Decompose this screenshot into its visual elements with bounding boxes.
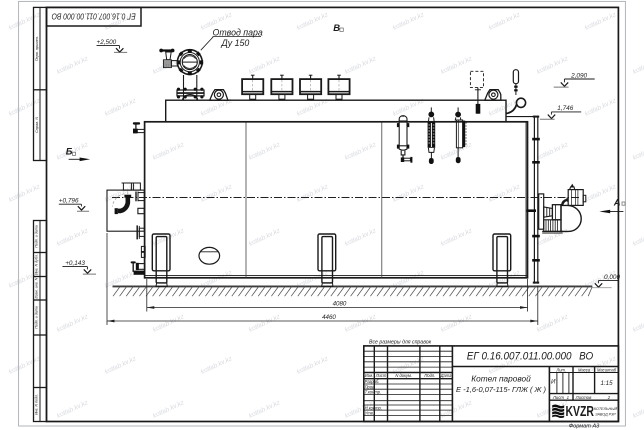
svg-text:Листов: Листов [575, 395, 592, 400]
svg-text:Масса: Масса [578, 367, 591, 372]
svg-text:2,090: 2,090 [570, 73, 587, 80]
svg-text:Взам. инв. N: Взам. инв. N [35, 277, 39, 298]
svg-text:Дата: Дата [440, 373, 453, 378]
svg-text:ЕГ 0.16.007.011.00.000 ВО: ЕГ 0.16.007.011.00.000 ВО [467, 351, 594, 363]
svg-text:Лист: Лист [552, 395, 564, 400]
svg-text:Пров.: Пров. [365, 384, 376, 389]
svg-text:1:15: 1:15 [600, 380, 613, 387]
svg-text:Инв. N подл.: Инв. N подл. [35, 394, 39, 415]
svg-text:KVZR: KVZR [566, 404, 595, 420]
svg-text:Лит.: Лит. [555, 367, 566, 372]
svg-text:Разраб.: Разраб. [365, 379, 380, 384]
svg-text:Справ. N: Справ. N [35, 117, 39, 133]
svg-text:Т.контр.: Т.контр. [365, 390, 382, 395]
svg-text:И: И [551, 378, 556, 385]
svg-text:Н.контр.: Н.контр. [365, 405, 382, 410]
svg-text:+0,796: +0,796 [59, 198, 79, 205]
svg-text:А: А [613, 196, 621, 207]
svg-text:Котел паровой: Котел паровой [471, 373, 531, 383]
svg-text:Б: Б [66, 146, 73, 157]
svg-text:ЗАВОД РЗР: ЗАВОД РЗР [595, 412, 616, 416]
svg-text:0,000: 0,000 [604, 274, 620, 281]
svg-text:+2,500: +2,500 [97, 39, 117, 46]
svg-text:Подп.: Подп. [424, 373, 435, 378]
svg-text:4460: 4460 [322, 314, 336, 321]
svg-text:Утв.: Утв. [365, 411, 374, 416]
svg-text:+0,143: +0,143 [65, 260, 85, 267]
svg-text:Все размеры для справок: Все размеры для справок [369, 340, 432, 346]
svg-text:4080: 4080 [333, 301, 347, 308]
svg-text:Изм.: Изм. [365, 373, 374, 378]
svg-text:Лист: Лист [375, 373, 387, 378]
svg-text:Подп. и дата: Подп. и дата [35, 225, 39, 248]
svg-text:В: В [333, 22, 340, 33]
svg-text:Инв. N дубл.: Инв. N дубл. [35, 254, 39, 275]
svg-text:Перв. примен.: Перв. примен. [35, 36, 39, 61]
svg-text:N докум.: N докум. [395, 373, 412, 378]
svg-text:1,746: 1,746 [557, 105, 573, 112]
svg-text:КОТЕЛЬНЫЙ: КОТЕЛЬНЫЙ [594, 407, 618, 411]
svg-text:ЕГ 0.16.007.011.00.000 ВО: ЕГ 0.16.007.011.00.000 ВО [51, 12, 135, 22]
svg-text:Масштаб: Масштаб [597, 367, 617, 372]
svg-text:Формат А3: Формат А3 [569, 424, 600, 430]
svg-text:Подп. и дата: Подп. и дата [35, 306, 39, 329]
svg-text:Ду 150: Ду 150 [221, 38, 250, 48]
svg-text:Отвод пара: Отвод пара [213, 27, 263, 37]
svg-text:Е -1,6-0,07-115- ГЛЖ ( Ж ): Е -1,6-0,07-115- ГЛЖ ( Ж ) [456, 385, 547, 394]
